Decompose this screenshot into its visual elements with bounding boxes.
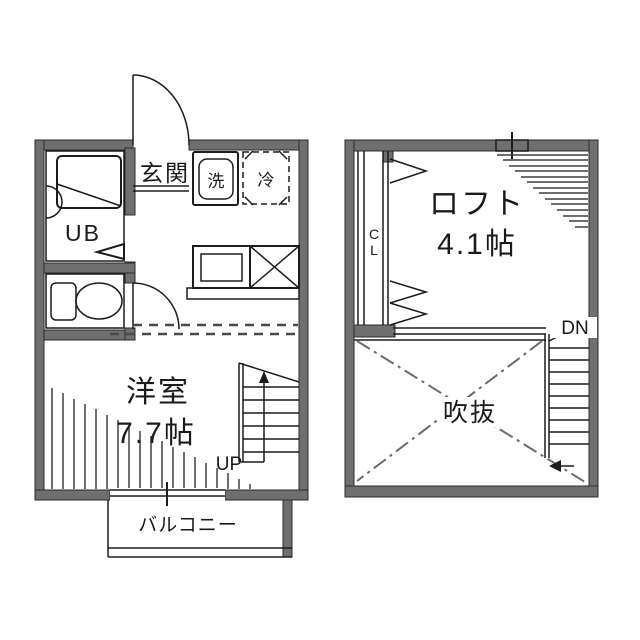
floor2-plan: ロフト 4.1帖 CL DN 吹抜 — [345, 133, 598, 497]
kitchen-icon — [187, 246, 299, 299]
window-icon — [110, 483, 225, 505]
stairs-down-label: DN — [561, 318, 588, 339]
floorplan-image: 玄関 洗 冷 UB 洋室 7.7帖 UP バルコニー — [0, 0, 640, 640]
loft-floor-edge — [393, 328, 546, 334]
loft-label: ロフト — [429, 188, 525, 221]
unit-bath-label: UB — [65, 220, 101, 246]
void-label: 吹抜 — [443, 399, 497, 427]
balcony-label: バルコニー — [138, 515, 238, 536]
staircase-up-icon — [239, 363, 299, 462]
closet-label: CL — [366, 226, 382, 258]
staircase-down-icon — [549, 321, 589, 472]
room-boundary-dashed-lines — [110, 325, 298, 334]
entrance-label: 玄関 — [140, 160, 190, 186]
room-size-label: 7.7帖 — [116, 417, 196, 450]
stairs-up-label: UP — [216, 454, 242, 475]
floorplan-page: 玄関 洗 冷 UB 洋室 7.7帖 UP バルコニー — [0, 0, 640, 640]
loft-size-label: 4.1帖 — [437, 228, 517, 261]
washer-label: 洗 — [208, 172, 225, 191]
room-door-icon — [133, 283, 179, 329]
floor1-plan: 玄関 洗 冷 UB 洋室 7.7帖 UP バルコニー — [35, 75, 308, 557]
toilet-icon — [46, 274, 124, 328]
fridge-label: 冷 — [258, 171, 275, 190]
room-label: 洋室 — [126, 376, 190, 409]
